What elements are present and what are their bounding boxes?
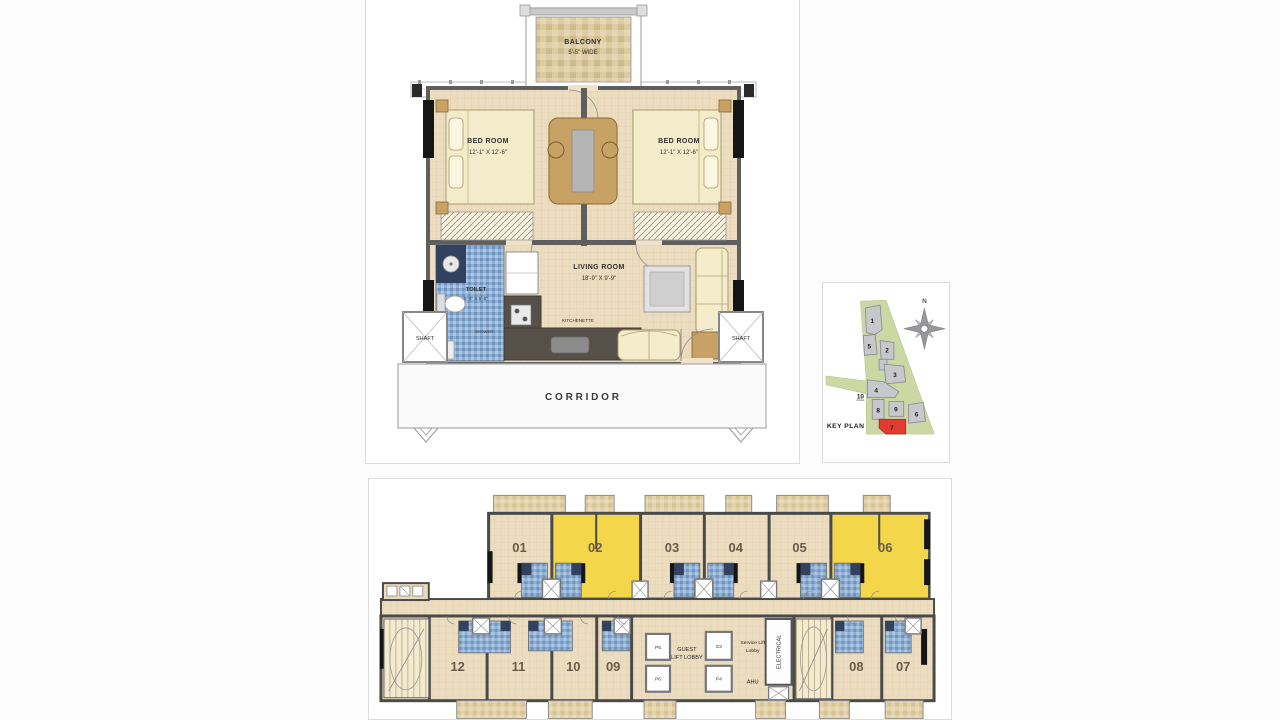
key-plan-label: KEY PLAN <box>827 423 865 430</box>
corridor: C O R R I D O R <box>398 364 766 442</box>
north-label: N <box>922 298 927 305</box>
bottom-balconies <box>457 701 923 719</box>
living-room-dim: 18'-9" X 9'-9" <box>582 276 617 282</box>
shower-label: SHOWER <box>475 329 493 334</box>
bedroom-right-dim: 12'-1" X 12'-6" <box>660 150 698 156</box>
unit-04-label: 04 <box>729 540 744 555</box>
building-7-label: 7 <box>890 425 894 432</box>
shaft-left: SHAFT <box>403 312 447 362</box>
unit-09-label: 09 <box>606 659 620 674</box>
bedroom-left-label: BED ROOM <box>467 138 509 145</box>
toilet-label: TOILET <box>466 287 487 293</box>
top-balconies <box>494 495 891 513</box>
toilet-dim: 5'-5" X 9'-5" <box>464 296 488 301</box>
building-3-label: 3 <box>893 372 897 379</box>
unit-05-label: 05 <box>792 540 806 555</box>
building-5-label: 5 <box>867 343 871 350</box>
unit-01-label: 01 <box>512 540 526 555</box>
unit-12-label: 12 <box>450 659 464 674</box>
building-8-label: 8 <box>876 407 880 414</box>
compass-icon: N <box>904 298 945 349</box>
building-2-label: 2 <box>885 347 889 354</box>
building-4-label: 4 <box>874 388 878 395</box>
unit-10-label: 10 <box>566 659 580 674</box>
unit-11-label: 11 <box>512 659 526 674</box>
balcony-label: BALCONY <box>564 39 601 46</box>
ahu-label: AHU <box>747 680 759 686</box>
top-row-bathrooms <box>517 563 864 599</box>
kitchenette-label: KITCHENETTE <box>562 318 594 323</box>
bedroom-left: BED ROOM 12'-1" X 12'-6" <box>436 100 534 240</box>
staircase-right <box>796 619 832 699</box>
bedroom-left-dim: 12'-1" X 12'-6" <box>469 150 507 156</box>
shaft-right-label: SHAFT <box>732 336 751 342</box>
unit-03-label: 03 <box>665 540 679 555</box>
bedroom-right: BED ROOM 12'-1" X 12'-6" <box>633 100 731 240</box>
unit-06-label: 06 <box>878 540 892 555</box>
building-6-label: 6 <box>915 411 919 418</box>
staircase-left <box>384 619 429 698</box>
lift-p4-label: P4 <box>716 677 722 683</box>
key-plan-panel: 1 2 3 4 5 6 8 9 10 7 N KEY PLAN <box>822 282 950 463</box>
guest-lift-lobby-line2: LIFT LOBBY <box>671 655 703 661</box>
building-1-label: 1 <box>870 318 874 325</box>
lift-p5-label: P5 <box>655 645 661 651</box>
living-room-label: LIVING ROOM <box>573 264 624 271</box>
floor-plate-panel: 01 02 03 04 05 06 <box>368 478 952 720</box>
electrical-label: ELECTRICAL <box>777 635 783 669</box>
unit-plan-drawing: BALCONY 5'-5" WIDE <box>366 0 800 450</box>
study-desk <box>548 118 618 204</box>
lift-s3-label: S3 <box>716 644 722 650</box>
service-lift-lobby-line2: Lobby <box>746 648 760 654</box>
unit-02-label: 02 <box>588 540 602 555</box>
lift-p6-label: P6 <box>655 677 661 683</box>
shaft-left-label: SHAFT <box>416 336 435 342</box>
balcony: BALCONY 5'-5" WIDE <box>520 5 647 88</box>
key-plan-drawing: 1 2 3 4 5 6 8 9 10 7 N KEY PLAN <box>823 283 949 462</box>
floor-plate-drawing: 01 02 03 04 05 06 <box>369 479 951 720</box>
unit-07-label: 07 <box>896 659 910 674</box>
guest-lift-lobby-line1: GUEST <box>677 647 697 653</box>
corridor-label: C O R R I D O R <box>545 392 620 403</box>
unit-plan-panel: BALCONY 5'-5" WIDE <box>365 0 800 464</box>
unit-08-label: 08 <box>849 659 863 674</box>
service-lift-lobby-line1: Service Lift <box>740 640 765 646</box>
balcony-dim: 5'-5" WIDE <box>568 50 597 56</box>
bedroom-right-label: BED ROOM <box>658 138 700 145</box>
building-9-label: 9 <box>894 406 898 413</box>
shaft-right: SHAFT <box>719 312 763 362</box>
building-10-label: 10 <box>857 394 865 401</box>
